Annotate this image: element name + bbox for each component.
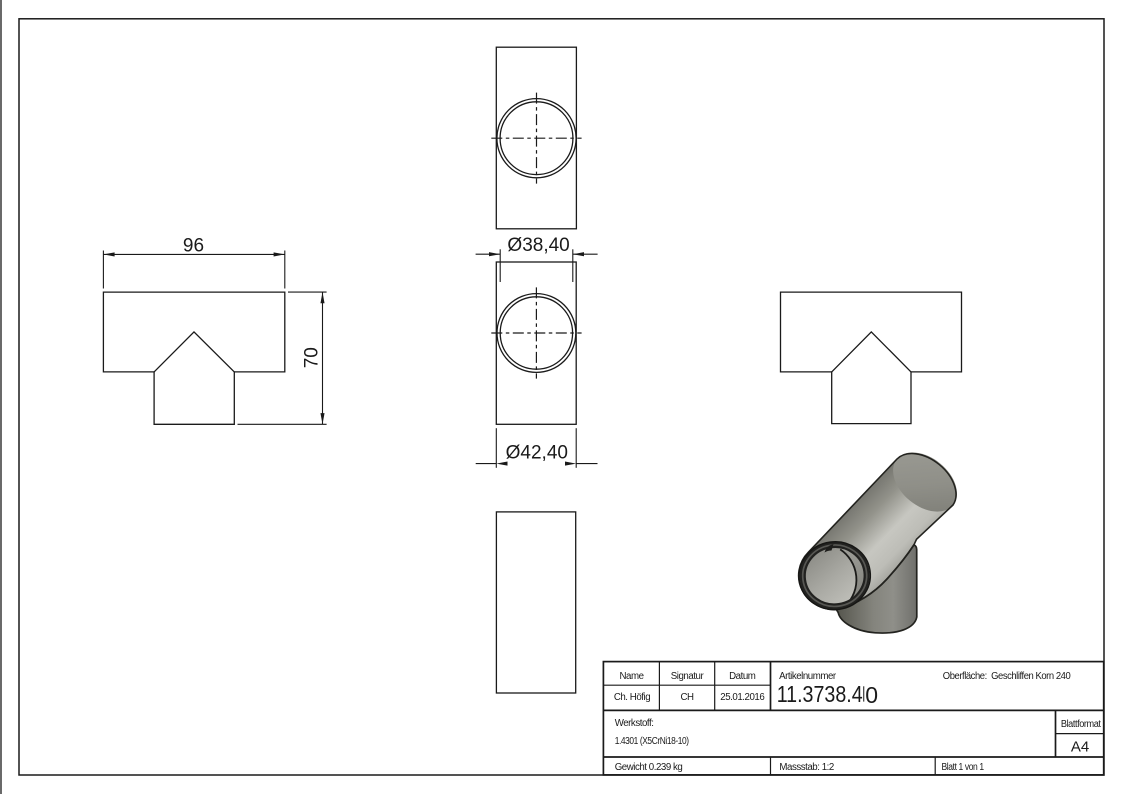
svg-text:Name: Name bbox=[619, 671, 643, 682]
svg-text:Signatur: Signatur bbox=[671, 671, 705, 682]
svg-text:0: 0 bbox=[865, 682, 878, 708]
svg-text:Massstab: 1:2: Massstab: 1:2 bbox=[779, 762, 834, 773]
svg-text:Oberfläche: Geschliffen Korn: Oberfläche: Geschliffen Korn 240 bbox=[943, 671, 1072, 682]
svg-text:25.01.2016: 25.01.2016 bbox=[720, 692, 764, 703]
svg-text:Werkstoff:: Werkstoff: bbox=[615, 718, 654, 729]
svg-text:Gewicht 0.239 kg: Gewicht 0.239 kg bbox=[615, 762, 683, 773]
svg-text:11.3738.4: 11.3738.4 bbox=[777, 681, 863, 707]
svg-text:A4: A4 bbox=[1071, 739, 1089, 756]
svg-text:96: 96 bbox=[183, 236, 204, 257]
svg-text:1.4301 (X5CrNi18-10): 1.4301 (X5CrNi18-10) bbox=[615, 736, 689, 747]
svg-text:Datum: Datum bbox=[729, 671, 756, 682]
svg-text:Blattformat: Blattformat bbox=[1061, 719, 1101, 730]
svg-text:Ø38,40: Ø38,40 bbox=[507, 235, 569, 256]
svg-text:Blatt 1 von 1: Blatt 1 von 1 bbox=[942, 762, 984, 773]
svg-text:Ø42,40: Ø42,40 bbox=[506, 443, 568, 464]
svg-text:70: 70 bbox=[301, 347, 322, 368]
svg-text:CH: CH bbox=[680, 692, 694, 703]
svg-text:Ch. Höfig: Ch. Höfig bbox=[614, 692, 650, 703]
